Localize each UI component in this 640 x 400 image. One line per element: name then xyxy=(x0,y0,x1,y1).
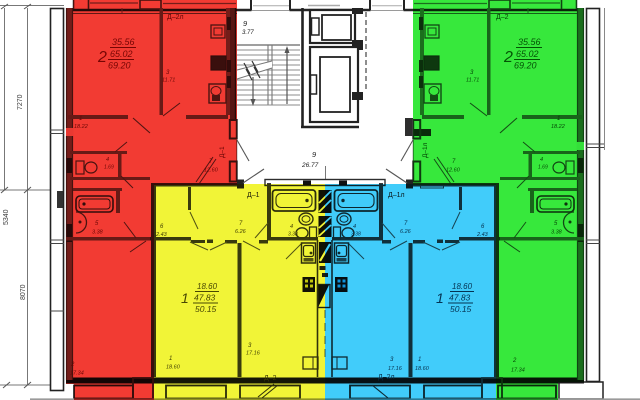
svg-text:7270: 7270 xyxy=(17,94,24,110)
svg-text:26.77: 26.77 xyxy=(301,162,319,169)
svg-text:3.77: 3.77 xyxy=(242,30,254,36)
svg-text:8070: 8070 xyxy=(20,284,27,300)
svg-text:5340: 5340 xyxy=(3,209,10,225)
svg-text:9: 9 xyxy=(312,150,317,159)
svg-text:9: 9 xyxy=(243,19,248,28)
